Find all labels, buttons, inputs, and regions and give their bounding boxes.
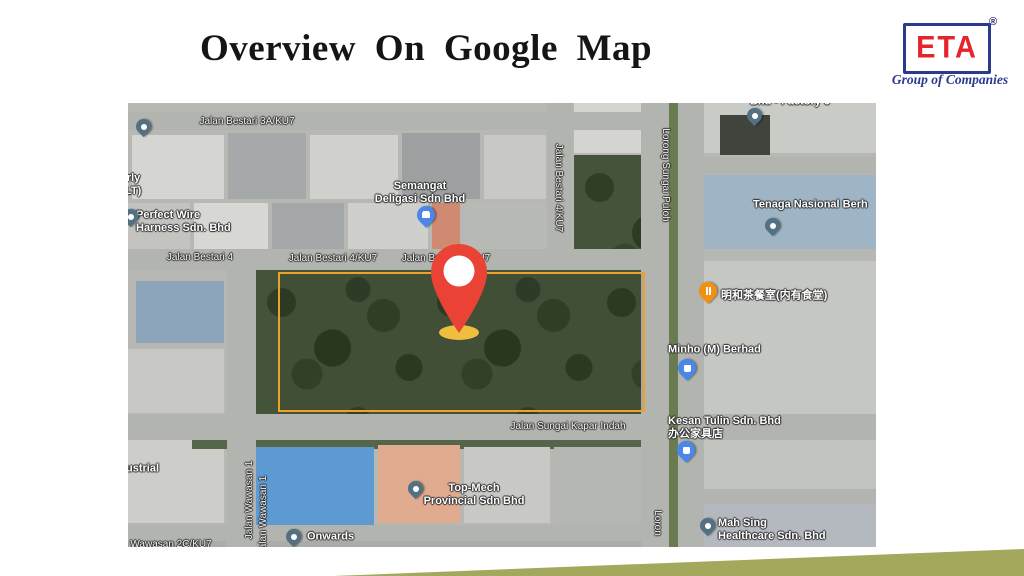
place-dot-icon	[128, 209, 138, 224]
map-building	[720, 115, 770, 155]
marker-minghe-restaurant	[695, 278, 720, 303]
marker-plt	[132, 115, 153, 136]
map-road	[128, 249, 690, 270]
site-pin	[429, 242, 489, 335]
map-building	[704, 504, 876, 547]
marker-mah-sing	[696, 514, 717, 535]
map-building	[402, 133, 480, 199]
marker-tenaga-nasional	[761, 214, 782, 235]
restaurant-icon	[699, 282, 717, 300]
map-building	[484, 135, 546, 199]
map-building	[128, 349, 224, 413]
map-building	[194, 203, 268, 249]
marker-onwards	[282, 525, 303, 546]
slide: Overview On Google Map ETA ® Group of Co…	[0, 0, 1024, 576]
marker-factory	[743, 104, 764, 125]
map-building	[704, 439, 876, 489]
map-road	[227, 270, 256, 547]
map-building	[128, 437, 224, 523]
place-dot-icon	[136, 119, 151, 134]
registered-trademark-icon: ®	[989, 16, 997, 28]
place-dot-icon	[700, 518, 715, 533]
map-building	[256, 447, 374, 525]
place-dot-icon	[747, 108, 762, 123]
eta-logo-box: ETA	[903, 23, 991, 74]
map-road	[128, 112, 690, 130]
marker-minho-berhad	[674, 355, 699, 380]
shopping-bag-icon	[678, 359, 696, 377]
map-building	[228, 133, 306, 199]
briefcase-icon	[417, 206, 435, 224]
map-building	[136, 281, 224, 343]
marker-kesan-tulin	[673, 437, 698, 462]
map-building	[704, 261, 876, 414]
map-building	[272, 203, 344, 249]
page-title: Overview On Google Map	[200, 27, 652, 70]
marker-top-mech	[404, 477, 425, 498]
map-road	[704, 489, 876, 504]
map-building	[132, 135, 224, 199]
place-dot-icon	[408, 481, 423, 496]
map-building	[464, 447, 550, 523]
map-road	[547, 103, 573, 270]
map-road	[704, 157, 876, 174]
corner-accent	[333, 545, 1024, 576]
map-building	[554, 447, 641, 525]
map-road	[128, 525, 690, 541]
marker-semangat-deligasi	[413, 202, 438, 227]
site-pin-circle	[444, 256, 475, 287]
map-road-median	[669, 103, 678, 547]
eta-logo: ETA ® Group of Companies	[885, 12, 1015, 92]
map-building	[310, 135, 398, 199]
map: Jalan Bestari 3A/KU7Jalan Bestari 4Jalan…	[128, 103, 876, 547]
place-dot-icon	[286, 529, 301, 544]
place-dot-icon	[765, 218, 780, 233]
shopping-bag-icon	[677, 441, 695, 459]
eta-logo-tagline: Group of Companies	[883, 72, 1017, 88]
map-building	[704, 175, 876, 249]
eta-logo-text: ETA	[916, 31, 978, 67]
